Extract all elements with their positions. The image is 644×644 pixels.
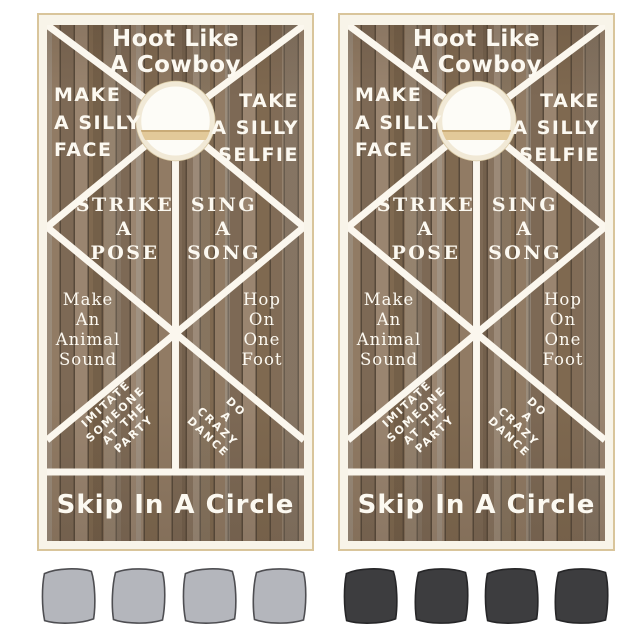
cornhole-board: Hoot Like A Cowboy MAKE A SILLY FACE TAK… — [37, 13, 314, 551]
zone-label-strike-a-pose: STRIKE A POSE — [366, 193, 486, 265]
board-footer-label: Skip In A Circle — [47, 489, 304, 521]
bean-bag-shape — [339, 563, 401, 629]
board-title-line: A Cowboy — [47, 52, 304, 78]
board-title-line: A Cowboy — [348, 52, 605, 78]
corn-hole — [139, 84, 212, 158]
bean-bag-shape — [178, 563, 240, 629]
board-title-line: Hoot Like — [47, 26, 304, 52]
bean-bag-gray — [37, 563, 99, 629]
zone-label-sing-a-song: SING A SONG — [470, 193, 580, 265]
bean-bag-dark — [480, 563, 542, 629]
zone-label-hop-on-one-foot: Hop On One Foot — [508, 290, 618, 370]
bean-bag-shape — [410, 563, 471, 628]
wood-panel: Hoot Like A Cowboy MAKE A SILLY FACE TAK… — [47, 25, 304, 541]
bean-bag-shape — [107, 563, 168, 628]
board-title: Hoot Like A Cowboy — [348, 26, 605, 78]
bean-bag-shape — [248, 563, 309, 628]
bean-bag-dark — [550, 563, 611, 628]
hole-backboard-strip — [437, 130, 515, 140]
zone-label-take-a-silly-selfie: TAKE A SILLY SELFIE — [512, 88, 600, 169]
zone-label-take-a-silly-selfie: TAKE A SILLY SELFIE — [211, 88, 299, 169]
bean-bag-shape — [550, 563, 611, 628]
wood-panel: Hoot Like A Cowboy MAKE A SILLY FACE TAK… — [348, 25, 605, 541]
zone-label-strike-a-pose: STRIKE A POSE — [65, 193, 185, 265]
bean-bag-shape — [37, 563, 99, 629]
board-footer-label: Skip In A Circle — [348, 489, 605, 521]
corn-hole — [440, 84, 513, 158]
board-title: Hoot Like A Cowboy — [47, 26, 304, 78]
zone-label-make-a-silly-face: MAKE A SILLY FACE — [355, 82, 443, 165]
bean-bag-gray — [248, 563, 309, 628]
bean-bag-gray — [178, 563, 240, 629]
bean-bag-shape — [480, 563, 542, 629]
bean-bag-dark — [410, 563, 471, 628]
board-title-line: Hoot Like — [348, 26, 605, 52]
zone-label-sing-a-song: SING A SONG — [169, 193, 279, 265]
bean-bag-gray — [107, 563, 168, 628]
zone-label-make-an-animal-sound: Make An Animal Sound — [334, 290, 444, 370]
zone-label-make-an-animal-sound: Make An Animal Sound — [33, 290, 143, 370]
cornhole-board: Hoot Like A Cowboy MAKE A SILLY FACE TAK… — [338, 13, 615, 551]
bean-bag-dark — [339, 563, 401, 629]
hole-backboard-strip — [136, 130, 214, 140]
zone-label-hop-on-one-foot: Hop On One Foot — [207, 290, 317, 370]
zone-label-make-a-silly-face: MAKE A SILLY FACE — [54, 82, 142, 165]
